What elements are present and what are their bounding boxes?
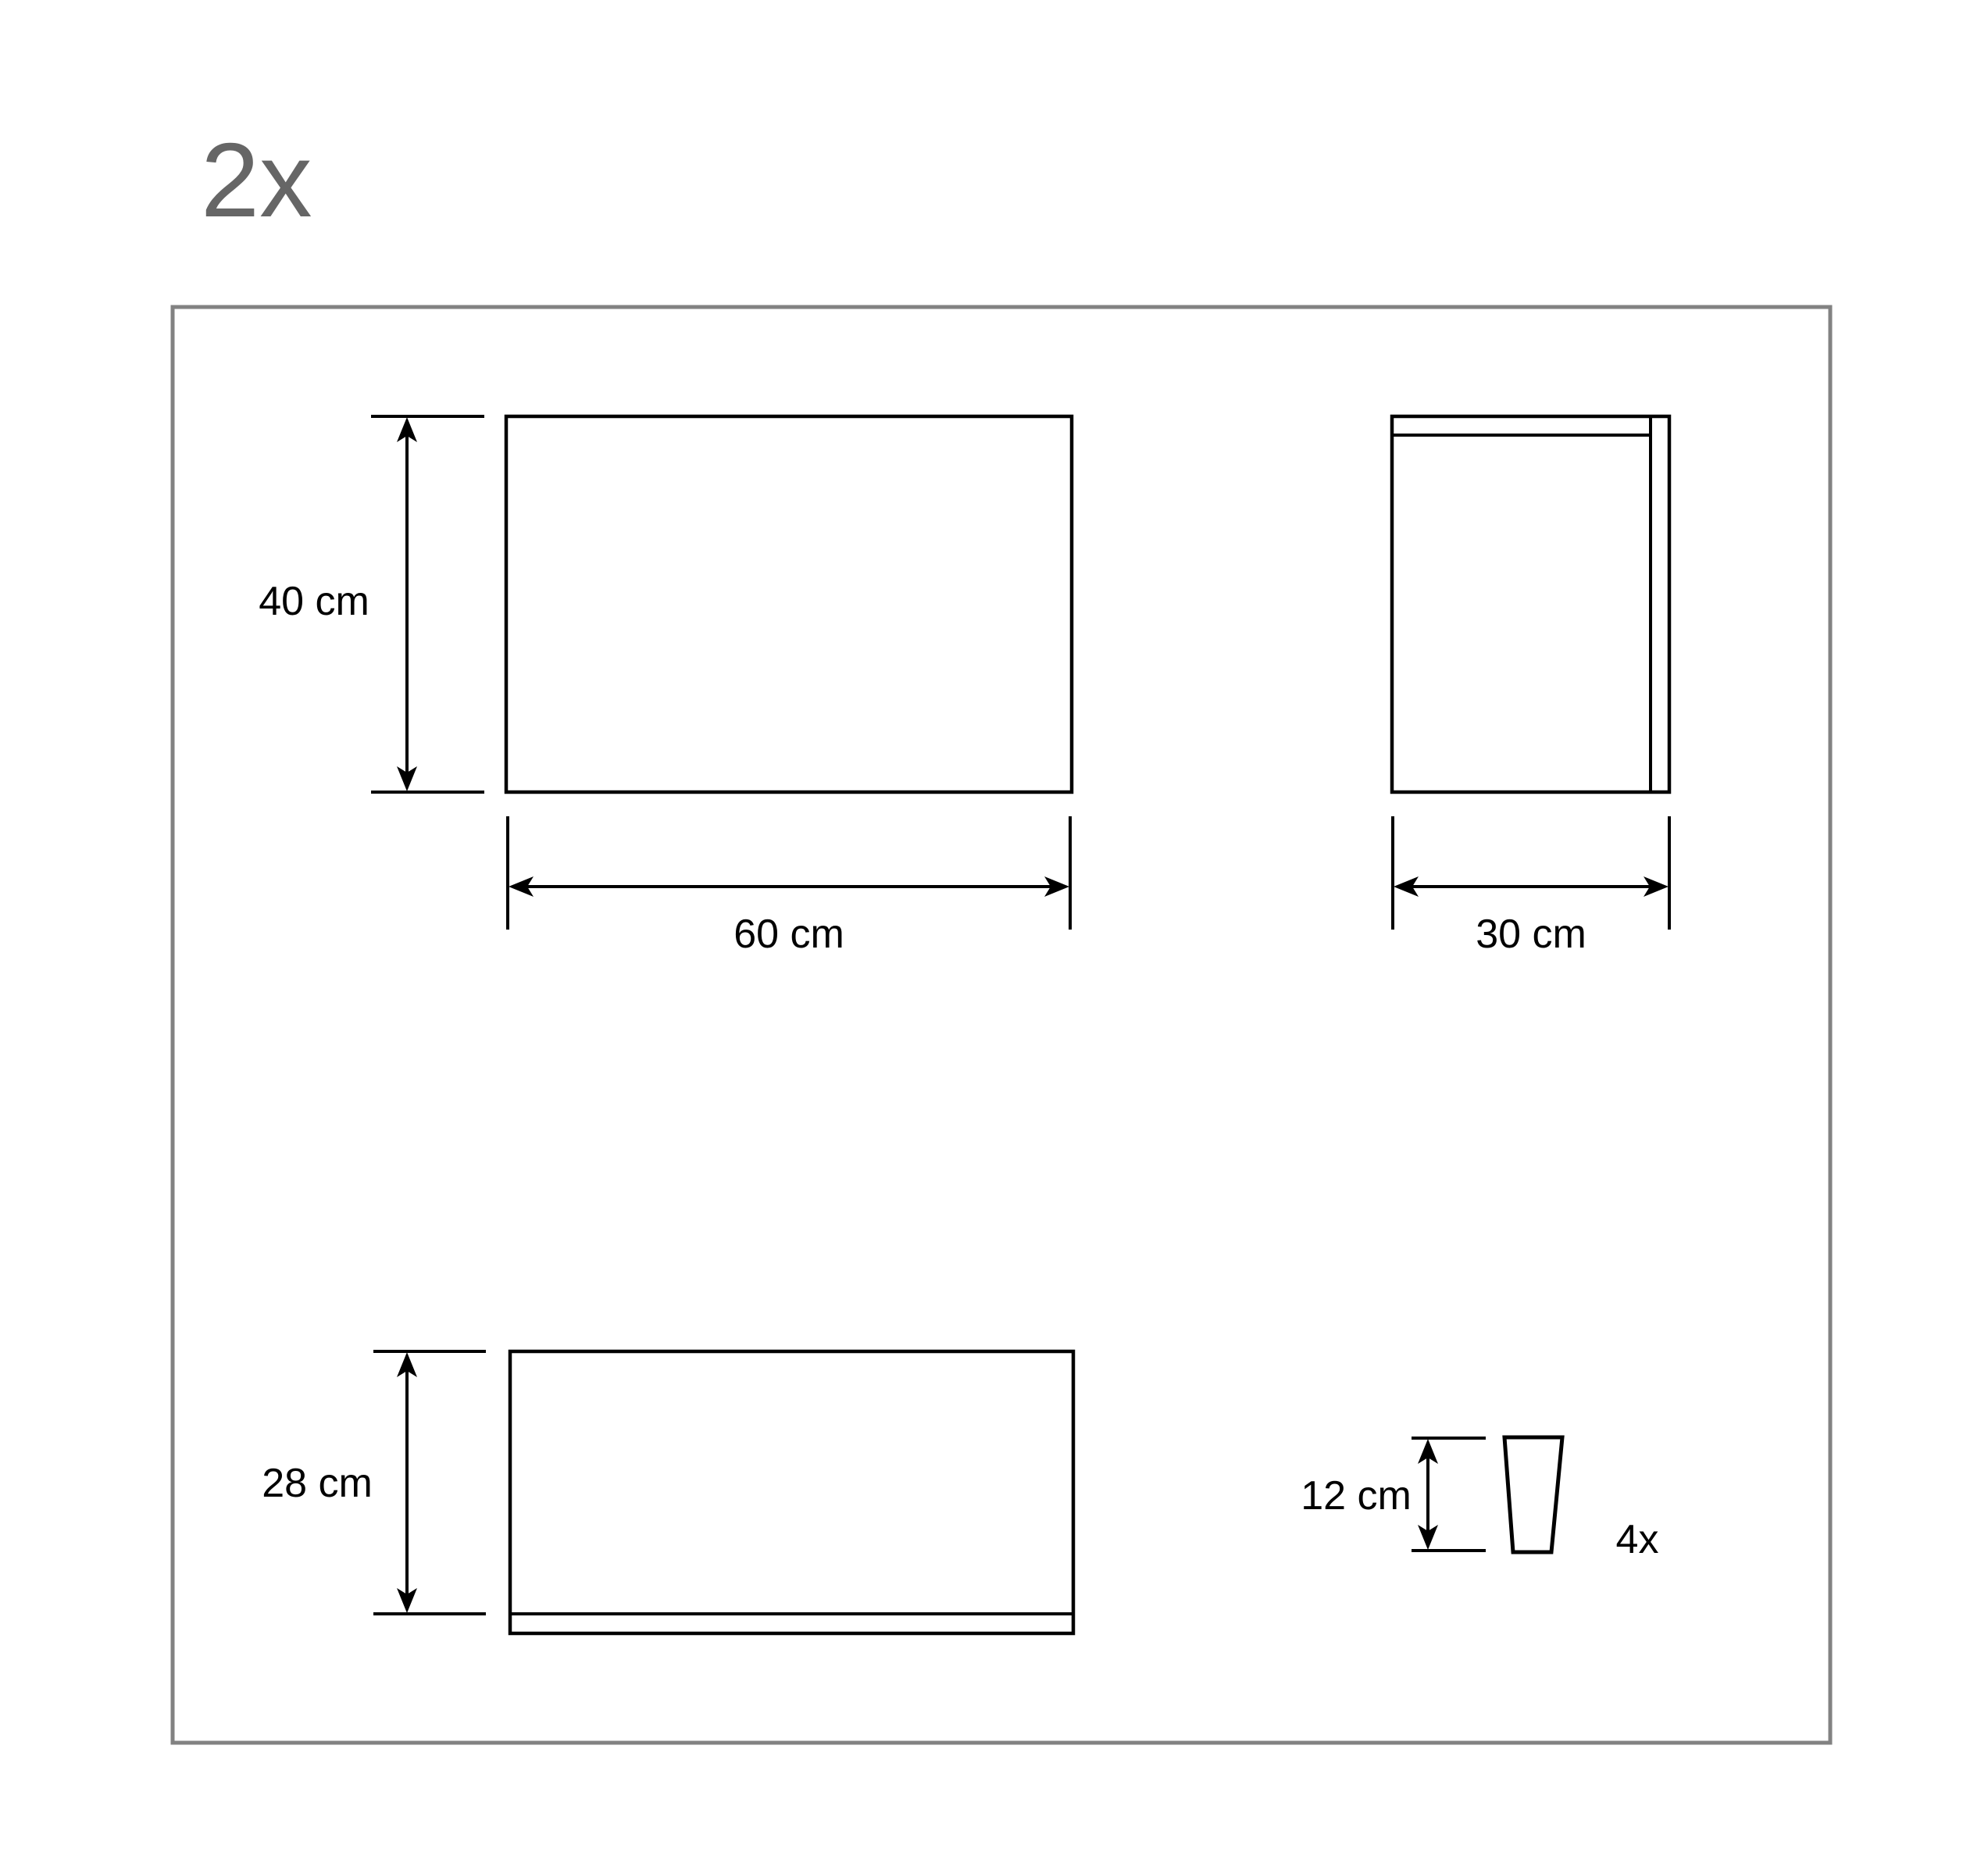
sheet-quantity-label: 2x <box>201 121 312 239</box>
leg-height-label: 12 cm <box>1301 1473 1412 1519</box>
side-panel-width-label: 30 cm <box>1476 912 1586 957</box>
side-panel-figure: 30 cm <box>1392 416 1669 957</box>
dimension-diagram: 2x 40 cm 60 cm <box>0 0 1988 1856</box>
leg-height-dimension: 12 cm <box>1301 1438 1486 1551</box>
front-panel-height-label: 40 cm <box>259 579 369 624</box>
front-panel-width-dimension: 60 cm <box>508 816 1070 957</box>
front-panel-outline <box>506 416 1072 792</box>
front-panel-height-dimension: 40 cm <box>259 416 484 792</box>
leg-outline <box>1504 1437 1562 1552</box>
front-panel-figure: 40 cm 60 cm <box>259 416 1072 957</box>
instruction-sheet: 2x 40 cm 60 cm <box>0 0 1988 1856</box>
front-panel-width-label: 60 cm <box>733 912 844 957</box>
leg-figure: 12 cm 4x <box>1301 1437 1658 1562</box>
shelf-panel-outline <box>510 1351 1073 1633</box>
shelf-panel-height-dimension: 28 cm <box>262 1351 486 1614</box>
side-panel-width-dimension: 30 cm <box>1393 816 1669 957</box>
shelf-panel-height-label: 28 cm <box>262 1461 373 1506</box>
leg-quantity-label: 4x <box>1616 1517 1659 1562</box>
side-panel-outline <box>1392 416 1669 792</box>
shelf-panel-figure: 28 cm <box>262 1351 1073 1633</box>
